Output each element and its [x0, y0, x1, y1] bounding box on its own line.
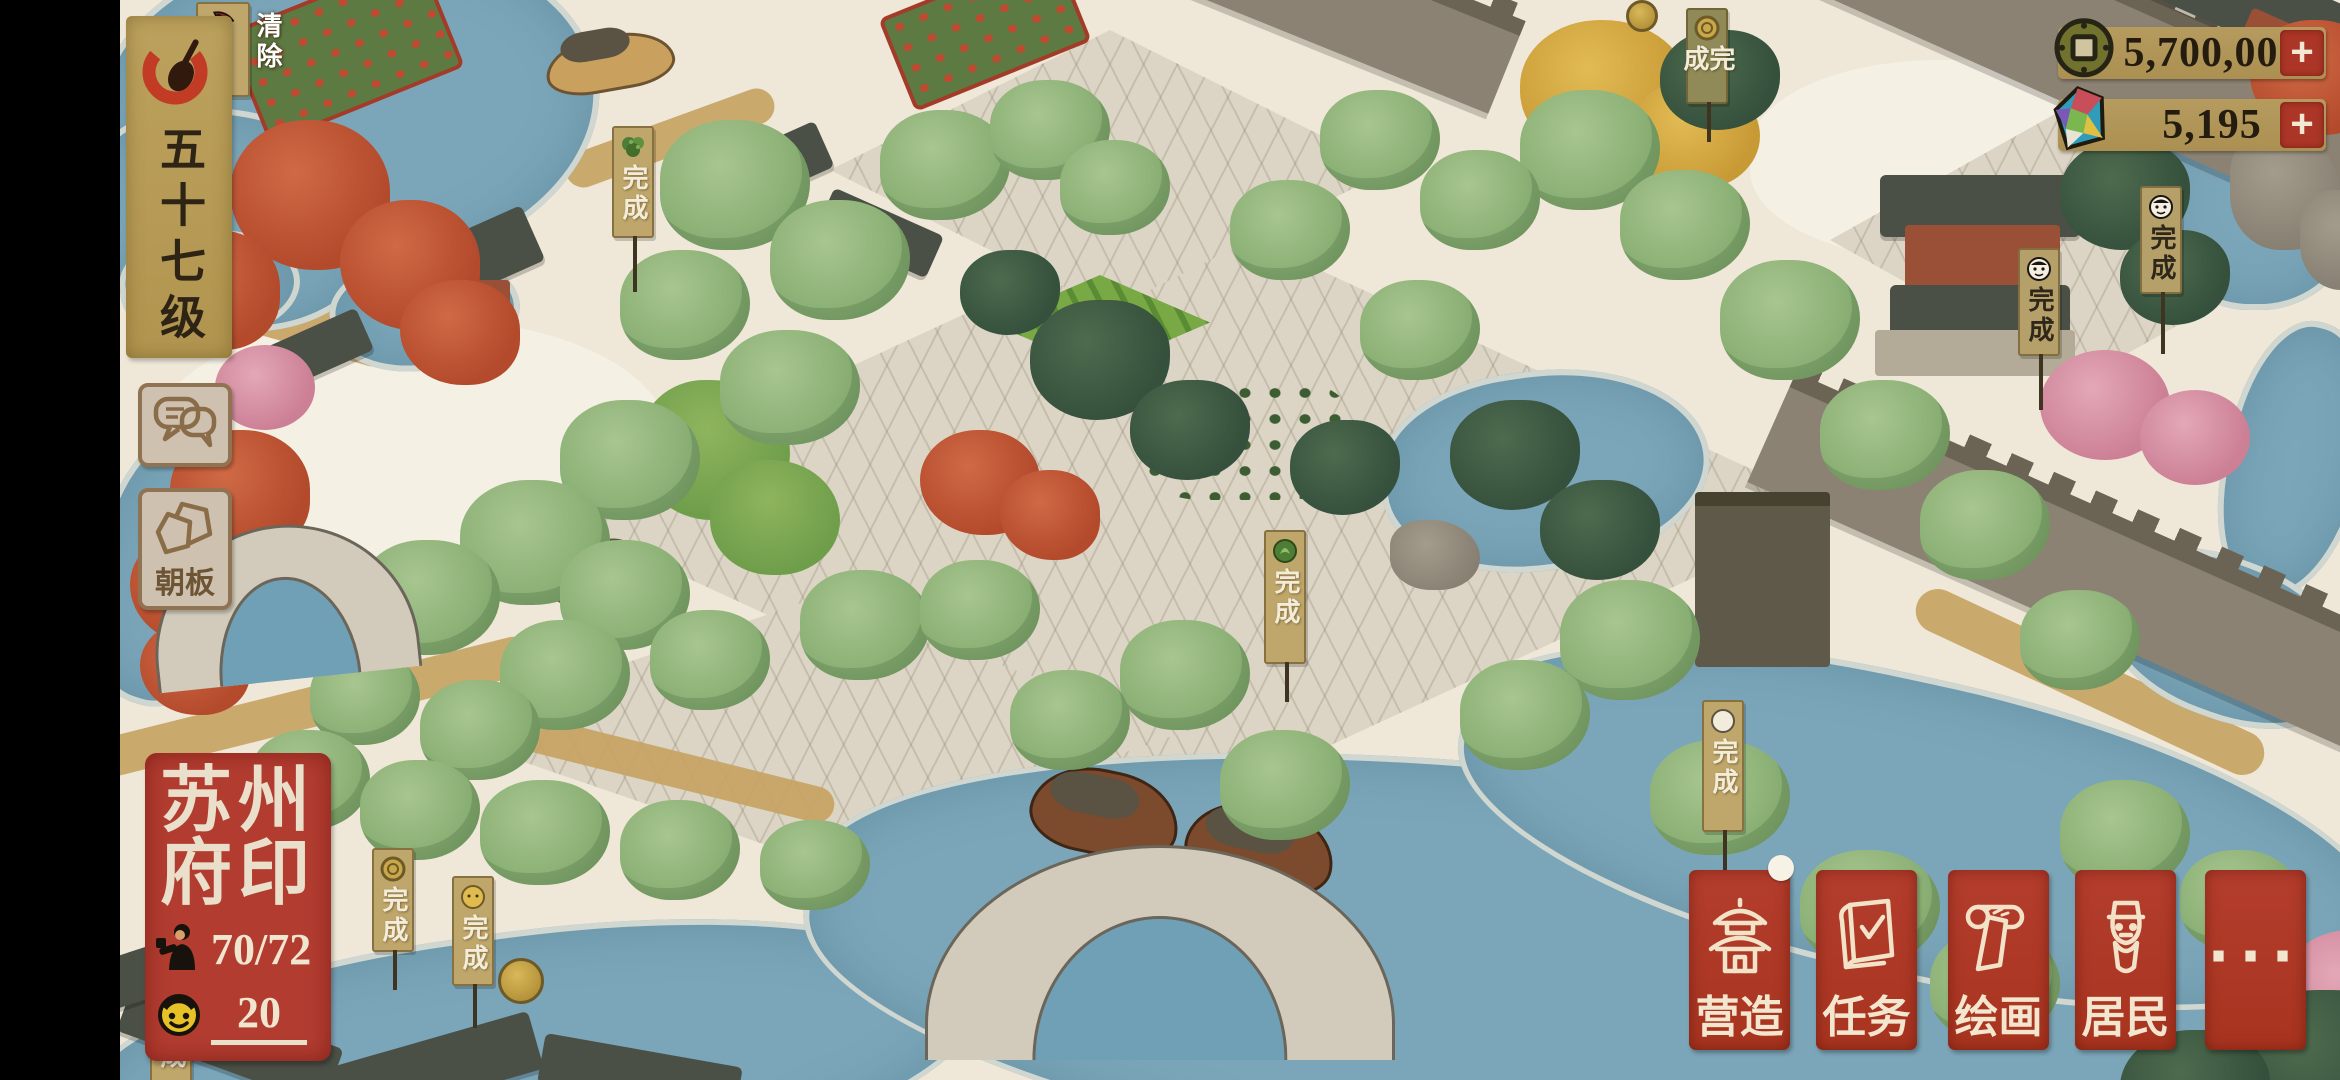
badge-gold-icon [459, 883, 487, 911]
happiness-smiley-icon [155, 989, 203, 1042]
map-art-shape [1695, 492, 1830, 667]
map-art-shape [1720, 260, 1860, 380]
map-flag-complete[interactable]: 完成 [1702, 700, 1744, 832]
gem-bar: 5,195 + [2058, 99, 2326, 151]
map-flag-complete[interactable]: 完成 [452, 876, 494, 986]
flag-pole [1285, 662, 1289, 702]
map-flag-complete[interactable]: 完成 [2018, 248, 2060, 356]
map-flag-text: 完成 [2148, 224, 2174, 284]
nav-tasks-label: 任务 [1823, 994, 1911, 1042]
seal-title-line2: 府印 [160, 838, 316, 911]
map-art-shape [498, 958, 544, 1004]
task-book-icon [1832, 897, 1902, 980]
medal-icon [1693, 15, 1721, 42]
player-level-banner[interactable]: 五十七级 [126, 16, 232, 358]
flag-pole [1707, 102, 1711, 142]
happiness-count: 20 [211, 987, 307, 1045]
speech-bubbles-icon [152, 393, 218, 458]
map-art-shape [2140, 390, 2250, 485]
copper-coin-bar: 5,700,000 + [2058, 27, 2326, 79]
face-icon [2025, 255, 2053, 283]
map-art-shape [620, 250, 750, 360]
map-art-shape [1620, 170, 1750, 280]
flag-pole [393, 950, 397, 990]
map-art-shape [1320, 90, 1440, 190]
map-flag-complete[interactable]: 完成 [612, 126, 654, 238]
nav-build-button[interactable]: 营造 [1689, 870, 1790, 1050]
map-flag-text: 完成 [620, 164, 646, 224]
nav-build-label: 营造 [1696, 994, 1784, 1042]
nav-paint-label: 绘画 [1955, 994, 2043, 1042]
copper-coin-amount: 5,700,000 [2124, 29, 2301, 77]
map-art-shape [480, 780, 610, 885]
worker-icon [155, 922, 203, 977]
build-notification-dot [1768, 855, 1794, 881]
nav-more-button[interactable]: ··· [2205, 870, 2306, 1050]
medal-icon [379, 855, 407, 883]
map-flag-complete[interactable]: 完成 [1264, 530, 1306, 664]
nav-paint-button[interactable]: 绘画 [1948, 870, 2049, 1050]
vegetable-icon [619, 133, 647, 161]
flag-pole [2039, 354, 2043, 410]
map-art-shape [360, 760, 480, 860]
map-art-shape [710, 460, 840, 575]
bridge-arch [1032, 916, 1287, 1060]
map-flag-text: 完成 [2026, 286, 2052, 346]
court-boards-icon [152, 500, 218, 567]
city-seal-panel[interactable]: 苏州 府印 70/72 [145, 753, 331, 1061]
flag-pole [2161, 292, 2165, 354]
map-flag-complete[interactable]: 完成 [372, 848, 414, 952]
map-flag-text: 清除 [254, 12, 280, 72]
leaf-icon [1271, 537, 1299, 565]
map-flag-complete[interactable]: 完成 [1686, 8, 1728, 104]
flag-pole [633, 236, 637, 292]
map-art-shape [1230, 180, 1350, 280]
player-level-text: 五十七级 [146, 125, 212, 349]
map-flag-text: 完成 [380, 886, 406, 946]
map-art-shape [620, 800, 740, 900]
screen-edge-bar [0, 0, 120, 1080]
map-art-shape [1000, 470, 1100, 560]
map-art-shape [400, 280, 520, 385]
map-flag-text: 完成 [1681, 45, 1733, 102]
chaoban-label: 朝板 [155, 569, 215, 599]
chaoban-button[interactable]: 朝板 [138, 488, 232, 610]
add-copper-button[interactable]: + [2280, 30, 2324, 76]
pavilion-build-icon [1705, 897, 1775, 980]
nav-residents-button[interactable]: 居民 [2075, 870, 2176, 1050]
resident-face-icon [2091, 897, 2161, 980]
chat-button[interactable] [138, 383, 232, 467]
add-gem-button[interactable]: + [2280, 102, 2324, 148]
worker-count: 70/72 [211, 924, 311, 975]
nav-residents-label: 居民 [2082, 994, 2170, 1042]
scroll-paint-icon [1964, 897, 2034, 980]
more-dots-icon: ··· [2207, 927, 2303, 985]
map-art-shape [770, 200, 910, 320]
map-art-shape [1626, 0, 1658, 32]
seal-title-line1: 苏州 [160, 765, 316, 838]
pipa-lute-icon [137, 30, 221, 119]
map-art-shape [1420, 150, 1540, 250]
badge-icon [1709, 707, 1737, 735]
map-flag-text: 完成 [1272, 568, 1298, 628]
nav-tasks-button[interactable]: 任务 [1816, 870, 1917, 1050]
copper-coin-icon [2052, 16, 2116, 85]
face-icon [2147, 193, 2175, 221]
map-flag-complete[interactable]: 完成 [2140, 186, 2182, 294]
gem-icon [2048, 82, 2113, 159]
game-screen: 清除完成完成完成完成完成完成完成完成成 五十七级 [0, 0, 2340, 1080]
flag-pole [473, 984, 477, 1028]
map-flag-text: 完成 [1710, 738, 1736, 798]
gem-amount: 5,195 [2162, 101, 2262, 149]
map-flag-text: 完成 [460, 914, 486, 974]
